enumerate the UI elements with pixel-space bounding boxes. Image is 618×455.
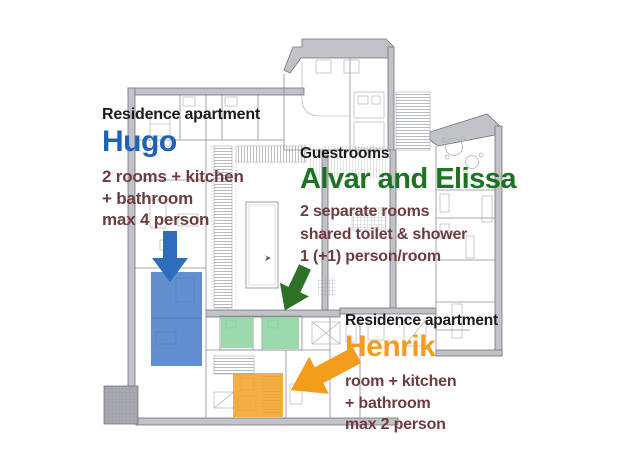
- alvar-detail-line: shared toilet & shower: [300, 224, 516, 247]
- floor-plan-image: Residence apartment Hugo 2 rooms + kitch…: [0, 0, 618, 455]
- alvar-room-highlight: [221, 317, 253, 348]
- hugo-detail-line: 2 rooms + kitchen: [102, 166, 260, 188]
- hugo-room-highlight: [151, 272, 202, 366]
- guestrooms-category: Guestrooms: [300, 144, 516, 163]
- henrik-label: Residence apartment Henrik room + kitche…: [345, 311, 498, 436]
- alvar-detail-line: 1 (+1) person/room: [300, 246, 516, 269]
- henrik-detail-line: + bathroom: [345, 393, 498, 415]
- henrik-name: Henrik: [345, 330, 498, 363]
- alvar-detail-line: 2 separate rooms: [300, 201, 516, 224]
- hugo-detail-line: + bathroom: [102, 188, 260, 210]
- hugo-detail-line: max 4 person: [102, 209, 260, 231]
- hugo-name: Hugo: [102, 125, 260, 158]
- henrik-room-highlight: [233, 373, 283, 417]
- elissa-room-highlight: [262, 317, 299, 349]
- entrance-block-texture: [104, 386, 138, 424]
- hugo-label: Residence apartment Hugo 2 rooms + kitch…: [102, 104, 260, 231]
- henrik-category: Residence apartment: [345, 311, 498, 330]
- henrik-detail-line: room + kitchen: [345, 371, 498, 393]
- alvar-elissa-name: Alvar and Elissa: [300, 163, 516, 195]
- hugo-category: Residence apartment: [102, 104, 260, 125]
- alvar-elissa-label: Guestrooms Alvar and Elissa 2 separate r…: [300, 144, 516, 269]
- henrik-detail-line: max 2 person: [345, 414, 498, 436]
